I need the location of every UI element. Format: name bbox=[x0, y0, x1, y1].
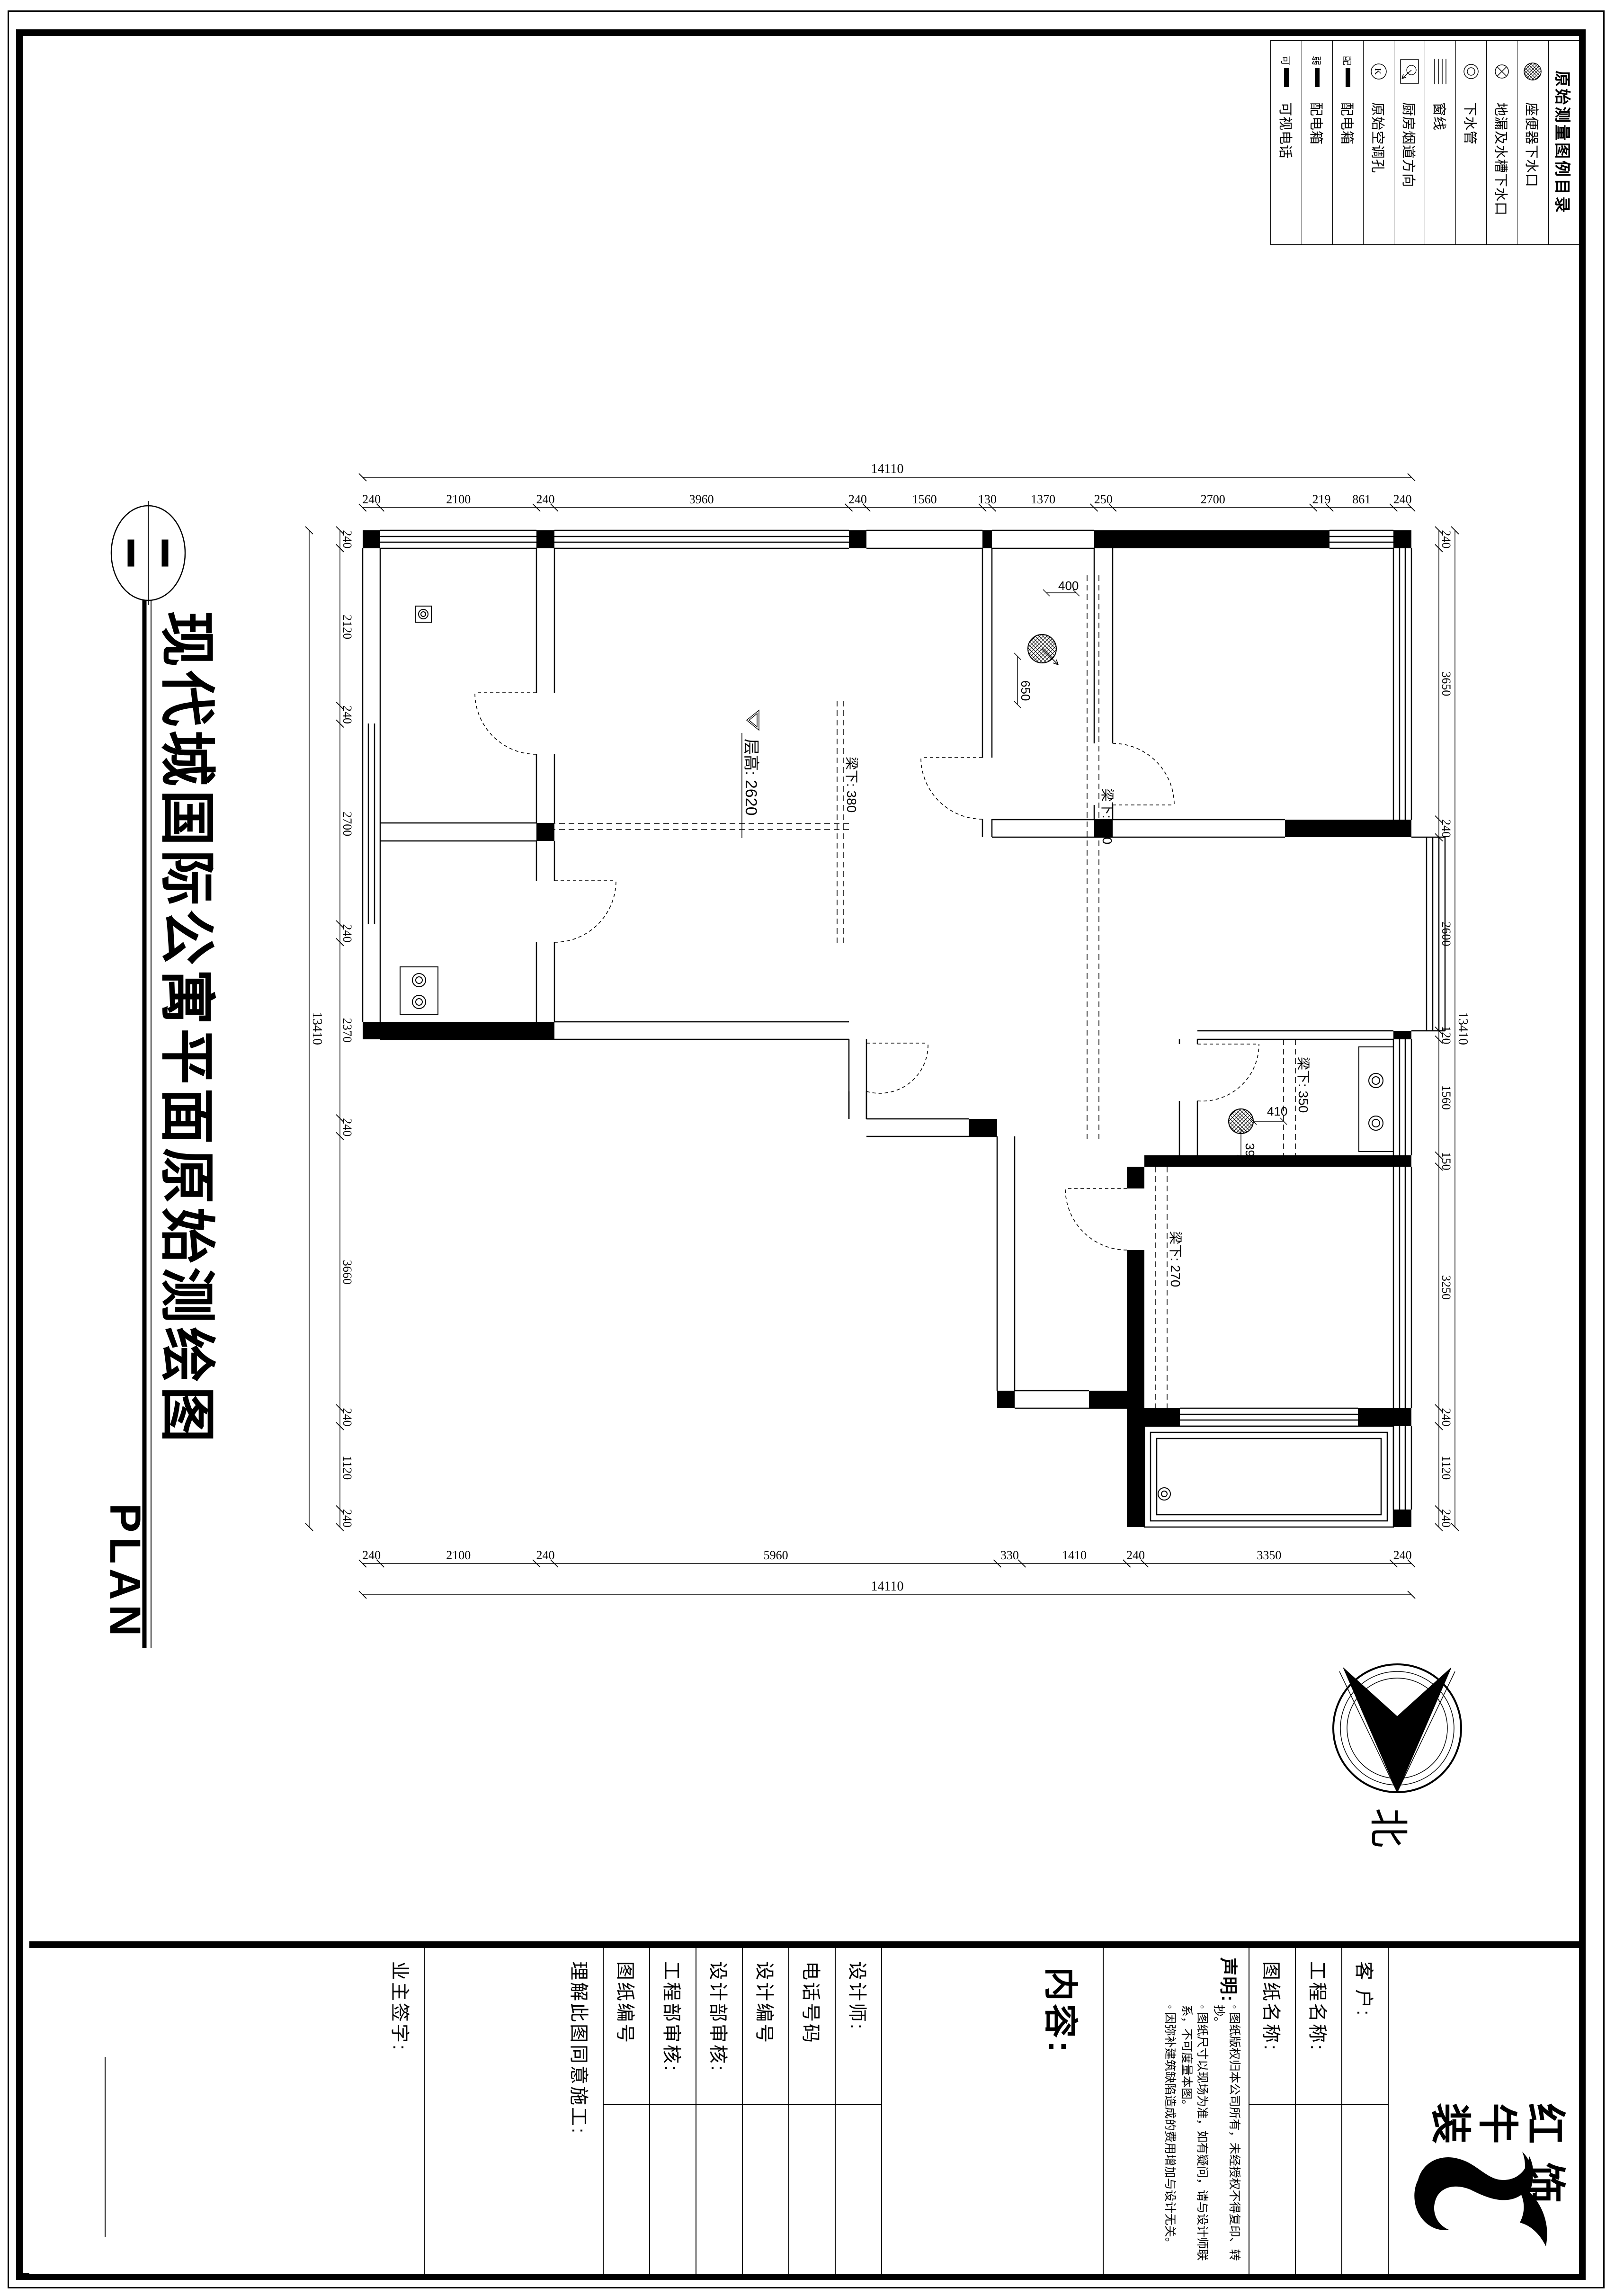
field-label: 设计编号 bbox=[752, 1961, 780, 2045]
dim-text: 240 bbox=[848, 492, 867, 506]
dim-text: 3650 bbox=[1439, 671, 1453, 696]
dim-text: 240 bbox=[1126, 1548, 1145, 1562]
field-row-design-review: 设计部审核: bbox=[696, 1948, 742, 2274]
dim-text: 3250 bbox=[1439, 1275, 1453, 1300]
dim-text: 5960 bbox=[764, 1548, 788, 1562]
scanned-drawing-page: 原始测量图例目录 座便器下水口 地漏及水槽下水口 下水管 窗线 bbox=[0, 0, 1615, 2296]
beam-label: 梁下: 350 bbox=[1296, 1057, 1311, 1113]
svg-text:梁下: 350: 梁下: 350 bbox=[1100, 788, 1115, 844]
statement-bullets: ◦ 图纸版权归本公司所有，未经授权不得复印、转抄。 ◦ 图纸尺寸以现场为准，如有… bbox=[1161, 2005, 1242, 2269]
field-label: 图纸编号 bbox=[613, 1961, 641, 2045]
svg-text:650: 650 bbox=[1018, 680, 1033, 701]
floor-plan: 2403650240260012015601503250240112024024… bbox=[0, 0, 1615, 1937]
field-divider bbox=[696, 2104, 742, 2105]
dim-text: 240 bbox=[362, 1548, 381, 1562]
dim-text: 240 bbox=[340, 924, 354, 942]
drawing-sheet: 原始测量图例目录 座便器下水口 地漏及水槽下水口 下水管 窗线 bbox=[0, 0, 1615, 2296]
dim-text: 130 bbox=[978, 492, 997, 506]
svg-text:梁下: 270: 梁下: 270 bbox=[1168, 1231, 1183, 1287]
field-label: 图纸名称: bbox=[1259, 1961, 1286, 2052]
north-label: 北 bbox=[1366, 1808, 1410, 1848]
field-divider bbox=[789, 2104, 835, 2105]
dim-text: 2370 bbox=[340, 1018, 354, 1043]
north-arrow bbox=[1333, 1664, 1461, 1792]
total-dim: 13410 bbox=[1455, 1012, 1470, 1045]
dim-text: 1560 bbox=[1439, 1085, 1453, 1110]
svg-text:北: 北 bbox=[1366, 1808, 1410, 1848]
dim-text: 3350 bbox=[1257, 1548, 1281, 1562]
agree-label: 理解此图同意施工: bbox=[567, 1961, 594, 2135]
bathroom-counter bbox=[1359, 1047, 1393, 1152]
spot-dim: 400 bbox=[1058, 579, 1079, 593]
dim-text: 240 bbox=[340, 706, 354, 724]
dim-text: 2100 bbox=[446, 492, 471, 506]
dim-text: 3960 bbox=[689, 492, 714, 506]
beam-label: 梁下: 270 bbox=[1168, 1231, 1183, 1287]
plan-labels: 层高: 2620梁下: 380梁下: 350梁下: 350梁下: 2704006… bbox=[742, 579, 1410, 1848]
field-label: 设计部审核: bbox=[706, 1961, 733, 2073]
dim-text: 240 bbox=[340, 1509, 354, 1528]
construction-agree-cell: 理解此图同意施工: bbox=[424, 1948, 603, 2274]
svg-text:400: 400 bbox=[1058, 579, 1079, 593]
dim-text: 1410 bbox=[1062, 1548, 1087, 1562]
dim-text: 240 bbox=[340, 1118, 354, 1136]
field-row-eng-review: 工程部审核: bbox=[649, 1948, 696, 2274]
field-row-phone: 电话号码 bbox=[788, 1948, 835, 2274]
field-label: 工程部审核: bbox=[660, 1961, 687, 2073]
dim-text: 330 bbox=[1000, 1548, 1019, 1562]
signature-line bbox=[105, 2057, 106, 2237]
spot-dim: 650 bbox=[1018, 680, 1033, 701]
dim-text: 240 bbox=[1393, 1548, 1412, 1562]
dim-text: 1120 bbox=[1439, 1456, 1453, 1480]
wall-piers bbox=[363, 530, 1411, 1527]
dim-text: 219 bbox=[1312, 492, 1330, 506]
balcony-drain bbox=[1158, 1488, 1170, 1500]
field-label: 设计师: bbox=[845, 1961, 873, 2031]
total-dim: 14110 bbox=[871, 462, 904, 476]
dim-text: 240 bbox=[536, 1548, 554, 1562]
dim-text: 1370 bbox=[1031, 492, 1055, 506]
content-cell: 内容: bbox=[881, 1948, 1103, 2274]
beam-lines bbox=[554, 575, 1393, 1408]
field-label: 客 户: bbox=[1352, 1961, 1379, 2017]
field-label: 工程名称: bbox=[1305, 1961, 1333, 2052]
dim-text: 240 bbox=[536, 492, 554, 506]
content-label: 内容: bbox=[1039, 1967, 1089, 2055]
statement-label: 声明: bbox=[1217, 1957, 1243, 2002]
beam-label: 梁下: 380 bbox=[844, 757, 859, 813]
field-divider bbox=[1296, 2104, 1341, 2105]
dim-text: 240 bbox=[1439, 530, 1453, 548]
dim-text: 2600 bbox=[1439, 922, 1453, 947]
field-label: 电话号码 bbox=[799, 1961, 826, 2045]
field-divider bbox=[650, 2104, 696, 2105]
dim-text: 240 bbox=[1393, 492, 1412, 506]
dim-text: 1560 bbox=[912, 492, 937, 506]
dim-text: 861 bbox=[1352, 492, 1371, 506]
dim-text: 2100 bbox=[446, 1548, 471, 1562]
field-divider bbox=[604, 2104, 649, 2105]
door-arcs bbox=[475, 693, 1259, 1250]
fixtures bbox=[400, 590, 1393, 1500]
statement-bullet: ◦ 图纸版权归本公司所有，未经授权不得复印、转抄。 bbox=[1211, 2005, 1242, 2269]
field-divider bbox=[743, 2104, 788, 2105]
total-dim: 13410 bbox=[310, 1012, 324, 1045]
field-divider bbox=[1249, 2104, 1295, 2105]
dim-text: 150 bbox=[1439, 1152, 1453, 1170]
dim-text: 1120 bbox=[340, 1456, 354, 1480]
beam-label: 梁下: 350 bbox=[1100, 788, 1115, 844]
dim-text: 240 bbox=[362, 492, 381, 506]
svg-text:层高: 2620: 层高: 2620 bbox=[742, 739, 760, 816]
field-row-customer: 客 户: bbox=[1341, 1948, 1388, 2274]
svg-text:梁下: 380: 梁下: 380 bbox=[844, 757, 859, 813]
dim-text: 250 bbox=[1094, 492, 1113, 506]
field-row-drawing-no: 图纸编号 bbox=[603, 1948, 649, 2274]
spot-dim: 390 bbox=[1243, 1143, 1257, 1163]
spot-dim: 410 bbox=[1267, 1104, 1287, 1118]
drawing-title: 现代城国际公寓平面原始测绘图 bbox=[152, 611, 232, 1510]
dim-text: 2700 bbox=[340, 812, 354, 836]
company-logo-bull bbox=[1390, 2109, 1579, 2265]
field-row-designer: 设计师: bbox=[835, 1948, 881, 2274]
dim-text: 240 bbox=[340, 530, 354, 548]
dim-text: 240 bbox=[340, 1408, 354, 1427]
owner-sign-label: 业主签字: bbox=[388, 1961, 415, 2052]
dim-text: 2120 bbox=[340, 615, 354, 639]
statement-bullet: ◦ 图纸尺寸以现场为准，如有疑问，请与设计师联系，不可度量本图。 bbox=[1178, 2005, 1210, 2269]
drain-fixture bbox=[415, 606, 431, 622]
field-row-drawing-name: 图纸名称: bbox=[1249, 1948, 1295, 2274]
owner-sign-cell: 业主签字: bbox=[34, 1948, 424, 2274]
field-row-design-no: 设计编号 bbox=[742, 1948, 788, 2274]
statement-cell: 声明: ◦ 图纸版权归本公司所有，未经授权不得复印、转抄。 ◦ 图纸尺寸以现场为… bbox=[1103, 1948, 1249, 2274]
dim-text: 240 bbox=[1439, 1408, 1453, 1427]
dim-text: 240 bbox=[1439, 1509, 1453, 1528]
dim-text: 240 bbox=[1439, 819, 1453, 838]
dim-text: 2700 bbox=[1201, 492, 1225, 506]
title-block: 红牛装饰 客 户: 工程名称: 图纸名称: 声明: ◦ 图纸版权归本公司所有，未… bbox=[29, 1941, 1579, 2274]
kitchen-sink bbox=[400, 967, 438, 1014]
floor-height-label: 层高: 2620 bbox=[742, 739, 760, 816]
field-divider bbox=[1342, 2104, 1388, 2105]
company-cell: 红牛装饰 bbox=[1388, 1948, 1579, 2274]
dim-text: 3660 bbox=[340, 1260, 354, 1285]
svg-text:梁下: 350: 梁下: 350 bbox=[1296, 1057, 1311, 1113]
statement-bullet: ◦ 因弥补建筑缺陷造成的费用增加与设计无关。 bbox=[1162, 2005, 1178, 2269]
svg-text:410: 410 bbox=[1267, 1104, 1287, 1118]
drawing-subtitle: PLAN bbox=[100, 1503, 150, 1641]
field-divider bbox=[836, 2104, 881, 2105]
total-dim: 14110 bbox=[871, 1579, 904, 1594]
field-row-project-name: 工程名称: bbox=[1295, 1948, 1341, 2274]
svg-text:390: 390 bbox=[1243, 1143, 1257, 1163]
